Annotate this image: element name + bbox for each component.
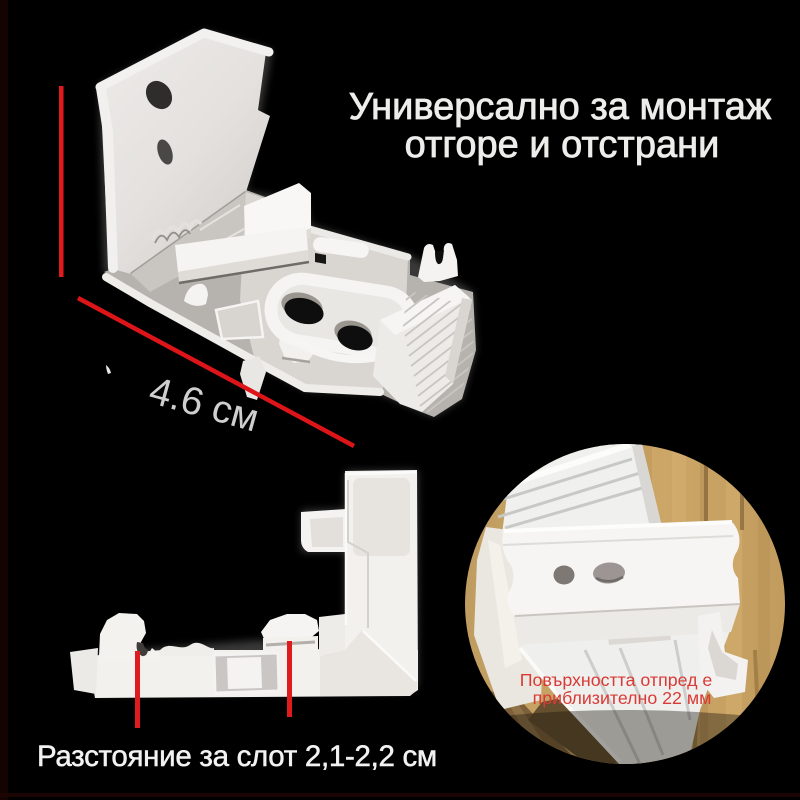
svg-text:отгоре и отстрани: отгоре и отстрани [405,124,720,166]
svg-text:Повърхността отпред е: Повърхността отпред е [520,670,713,690]
svg-text:Универсално за монтаж: Универсално за монтаж [349,86,772,128]
svg-text:приблизително 22 мм: приблизително 22 мм [533,688,712,708]
svg-text:Разстояние за слот 2,1-2,2 см: Разстояние за слот 2,1-2,2 см [37,740,437,773]
